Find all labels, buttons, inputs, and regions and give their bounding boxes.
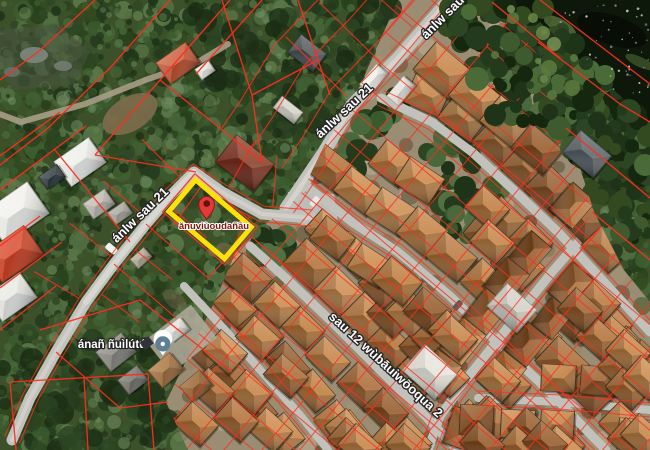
- svg-text:ánañ ñuìlútú: ánañ ñuìlútú: [78, 339, 146, 351]
- svg-text:ănuviùoudañāu: ănuviùoudañāu: [179, 221, 249, 232]
